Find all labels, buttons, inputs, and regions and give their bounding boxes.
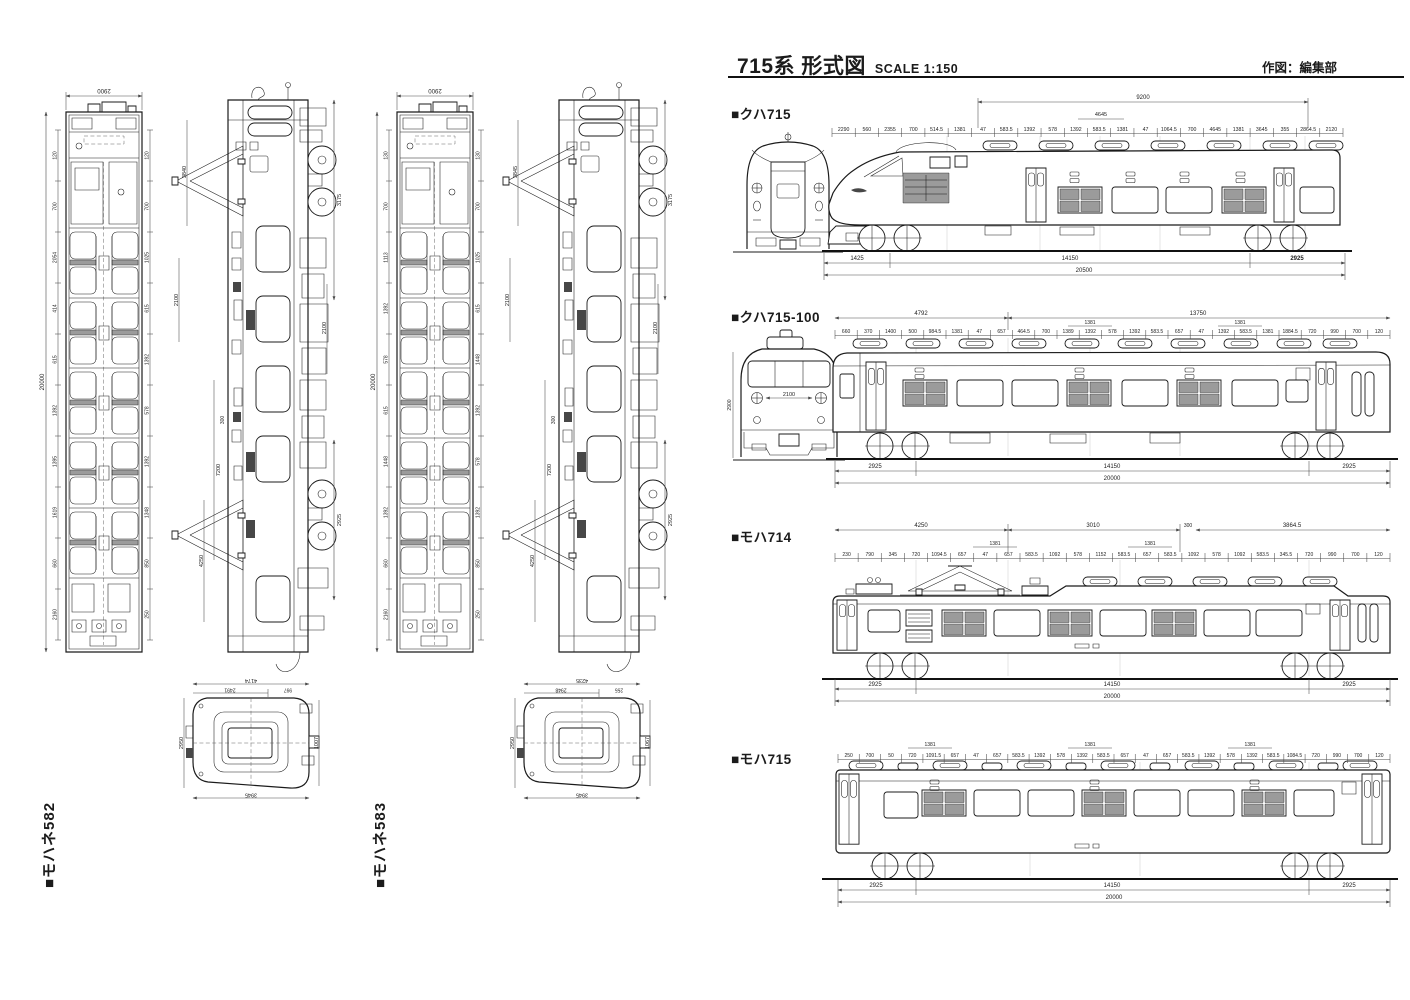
dim-text: 355: [1281, 127, 1290, 133]
dim-text: 47: [983, 552, 989, 558]
dim-text: 1025: [476, 252, 482, 263]
dim-text: 1381: [1244, 742, 1255, 748]
kuha715-drawing: 22905602355700514.5138147583.51392578139…: [733, 95, 1352, 280]
dim-text: 1092: [1188, 552, 1199, 558]
dim-text: 2925: [668, 514, 674, 526]
dim-text: 1007: [314, 737, 320, 749]
scale-note: SCALE 1:150: [875, 62, 958, 76]
dim-text: 1392: [1024, 127, 1036, 133]
dim-text: 578: [476, 457, 482, 466]
dim-text: 4645: [1095, 112, 1107, 118]
dim-text: 20000: [1104, 476, 1121, 482]
header-rule: [728, 76, 1404, 78]
dim-text: 1113: [384, 252, 390, 263]
dim-text: 230: [842, 552, 851, 558]
dim-text: 2100: [505, 294, 511, 306]
dim-text: 120: [1374, 552, 1383, 558]
dim-text: 3945: [576, 792, 588, 798]
bottom-dims: 2925 14150 2925 20000: [835, 461, 1390, 488]
dim-text: 578: [145, 406, 151, 415]
dim-text: 2491: [224, 687, 235, 693]
dim-text: 2100: [322, 322, 328, 334]
dim-text: 583.5: [1239, 329, 1252, 335]
dim-text: 583.5: [1093, 127, 1106, 133]
dim-text: 4645: [1209, 127, 1221, 133]
dim-text: 1425: [850, 256, 864, 262]
dim-text: 345.5: [1280, 552, 1293, 558]
dim-text: 720: [1305, 552, 1314, 558]
dim-text: 3010: [1086, 523, 1100, 529]
side-view: [826, 338, 1398, 459]
dim-text: 2948: [555, 687, 566, 693]
dim-text: 657: [1163, 753, 1172, 759]
dim-text: 583.5: [1025, 552, 1038, 558]
dimension-row: 2307903457201094.565747657583.5109257811…: [835, 552, 1390, 562]
dim-text: 14150: [1104, 883, 1121, 889]
dim-text: 583.5: [1151, 329, 1164, 335]
dim-text: 2925: [337, 514, 343, 526]
dim-text: 578: [1212, 552, 1221, 558]
dim-text: 2900: [97, 87, 111, 93]
bottom-dims: 1425 14150 2925 20500: [824, 253, 1345, 280]
dim-text: 578: [384, 355, 390, 364]
dim-text: 120: [53, 151, 59, 160]
dim-text: 615: [53, 355, 59, 364]
dim-text: 583.5: [1012, 753, 1025, 759]
dim-text: 47: [1199, 329, 1205, 335]
dim-text: 20000: [1104, 694, 1121, 700]
dim-text: 14150: [1062, 256, 1079, 262]
dim-text: 1392: [145, 456, 151, 467]
dim-text: 3175: [668, 194, 674, 206]
dim-text: 3945: [245, 792, 257, 798]
dim-text: 2120: [1326, 127, 1338, 133]
dim-text: 120: [1375, 329, 1384, 335]
dim-text: 47: [977, 329, 983, 335]
dim-text: 3845: [513, 166, 519, 178]
dim-text: 2054: [53, 252, 59, 263]
dim-text: 1392: [1034, 753, 1045, 759]
dim-text: 578: [1048, 127, 1057, 133]
dim-text: 700: [909, 127, 918, 133]
dim-text: 657: [1004, 552, 1013, 558]
dim-text: 500: [909, 329, 918, 335]
dim-text: 1348: [145, 507, 151, 518]
front-view: 2100 2900: [727, 330, 845, 460]
dim-text: 583.5: [1118, 552, 1131, 558]
dim-text: 1381: [1233, 127, 1245, 133]
dim-text: 1381: [1262, 329, 1273, 335]
dim-text: 578: [1074, 552, 1083, 558]
dim-text: 20000: [40, 373, 46, 390]
dim-text: 2900: [727, 399, 733, 410]
dim-text: 2900: [428, 87, 442, 93]
dim-text: 2925: [868, 464, 882, 470]
blueprint-page: 2900 20000 12070020544146151392139516196…: [0, 0, 1410, 1000]
dim-text: 657: [951, 753, 960, 759]
dim-text: 514.5: [930, 127, 943, 133]
dim-text: 1381: [1144, 541, 1155, 547]
dim-text: 14150: [1104, 464, 1121, 470]
dimension-row: 22905602355700514.5138147583.51392578139…: [832, 127, 1343, 137]
dim-text: 1392: [476, 507, 482, 518]
dim-text: 615: [476, 304, 482, 313]
dim-text: 20000: [1106, 895, 1123, 901]
dim-text: 720: [1308, 329, 1317, 335]
dim-text: 700: [53, 202, 59, 211]
dim-text: 1381: [989, 541, 1000, 547]
dim-text: 4792: [914, 311, 928, 317]
dim-text: 1381: [954, 127, 966, 133]
dim-text: 1392: [1070, 127, 1082, 133]
dim-text: 657: [958, 552, 967, 558]
dim-text: 2925: [1342, 464, 1356, 470]
dim-text: 14150: [1104, 682, 1121, 688]
dim-text: 1092: [1049, 552, 1060, 558]
dim-text: 7200: [547, 464, 553, 476]
dim-text: 370: [864, 329, 873, 335]
dim-text: 3175: [337, 194, 343, 206]
dim-text: 1400: [885, 329, 896, 335]
dim-text: 1392: [145, 354, 151, 365]
dim-text: 700: [1188, 127, 1197, 133]
dim-text: 700: [1353, 329, 1362, 335]
dim-text: 1381: [1084, 320, 1095, 326]
side-view: [822, 761, 1398, 879]
dim-text: 560: [863, 127, 872, 133]
dim-text: 700: [384, 202, 390, 211]
dim-text: 700: [1354, 753, 1363, 759]
dim-text: 1381: [1234, 320, 1245, 326]
dim-text: 720: [1312, 753, 1321, 759]
bottom-dims: 2925 14150 2925 20000: [835, 679, 1390, 706]
front-view: [733, 132, 843, 252]
credit-note: 作図：編集部: [1262, 57, 1337, 76]
dim-text: 7200: [216, 464, 222, 476]
dim-text: 615: [145, 304, 151, 313]
dim-text: 1392: [476, 405, 482, 416]
dim-text: 2925: [1342, 883, 1356, 889]
dim-text: 2950: [179, 737, 185, 749]
moha715-drawing: 250700507201091.565747657583.51392578139…: [822, 742, 1398, 907]
drawing-canvas: 2900 20000 12070020544146151392139516196…: [0, 0, 1410, 1000]
label-moha715: ■モハ715: [731, 748, 792, 768]
label-moha714: ■モハ714: [731, 526, 792, 546]
dim-text: 2160: [53, 609, 59, 620]
dim-text: 345: [889, 552, 898, 558]
dim-text: 583.5: [1182, 753, 1195, 759]
dim-text: 1392: [1085, 329, 1096, 335]
dim-text: 3840: [182, 166, 188, 178]
dim-text: 583.5: [1257, 552, 1270, 558]
dim-text: 4235: [576, 677, 588, 683]
dim-text: 700: [476, 202, 482, 211]
dim-text: 578: [1108, 329, 1117, 335]
plan-left-dims: 13070011131392578615144813926602160: [384, 130, 393, 640]
dim-text: 250: [476, 610, 482, 619]
dim-text: 1448: [384, 456, 390, 467]
dim-text: 1064.5: [1161, 127, 1177, 133]
dim-text: 657: [1175, 329, 1184, 335]
dim-text: 583.5: [1000, 127, 1013, 133]
dim-text: 660: [384, 559, 390, 568]
dim-text: 660: [53, 559, 59, 568]
dim-text: 1395: [53, 456, 59, 467]
dim-text: 720: [908, 753, 917, 759]
dim-text: 2290: [838, 127, 850, 133]
mohane583-drawing: 2900 20000 13070011131392578615144813926…: [371, 83, 674, 799]
mohane582-drawing: 2900 20000 12070020544146151392139516196…: [40, 83, 343, 799]
dim-text: 300: [551, 416, 557, 425]
dim-text: 990: [1333, 753, 1342, 759]
dim-text: 120: [1375, 753, 1384, 759]
dimension-row: 6603701400500984.5138147657464.570013891…: [835, 329, 1390, 339]
dim-text: 1025: [145, 252, 151, 263]
dim-text: 250: [145, 610, 151, 619]
dim-text: 1392: [53, 405, 59, 416]
moha714-drawing: 2307903457201094.565747657583.5109257811…: [822, 523, 1398, 706]
dim-text: 657: [1143, 552, 1152, 558]
dim-text: 464.5: [1017, 329, 1030, 335]
dim-text: 47: [973, 753, 979, 759]
dim-text: 2925: [868, 682, 882, 688]
dim-text: 1389: [1063, 329, 1074, 335]
dim-text: 850: [476, 559, 482, 568]
dim-text: 1392: [384, 507, 390, 518]
dim-text: 2355: [884, 127, 896, 133]
side-view: [822, 136, 1352, 251]
dim-text: 3645: [1256, 127, 1268, 133]
dim-text: 1392: [1246, 753, 1257, 759]
dim-text: 720: [912, 552, 921, 558]
dim-text: 850: [145, 559, 151, 568]
dim-text: 1381: [924, 742, 935, 748]
dim-text: 255: [615, 687, 624, 693]
label-mohane583: ■モハネ583: [369, 802, 390, 888]
dim-text: 4174: [245, 677, 257, 683]
dim-text: 1381: [1117, 127, 1129, 133]
label-kuha715-100: ■クハ715-100: [731, 306, 820, 326]
dim-text: 1392: [1077, 753, 1088, 759]
dim-text: 1381: [1084, 742, 1095, 748]
label-kuha715: ■クハ715: [731, 103, 791, 123]
dim-text: 2100: [783, 392, 795, 398]
dim-text: 130: [384, 151, 390, 160]
dim-text: 1392: [1204, 753, 1215, 759]
dim-text: 47: [980, 127, 986, 133]
dim-text: 700: [866, 753, 875, 759]
dim-text: 700: [145, 202, 151, 211]
dim-text: 2950: [510, 737, 516, 749]
dim-text: 1381: [952, 329, 963, 335]
dim-text: 1392: [1129, 329, 1140, 335]
dim-text: 1084.5: [1287, 753, 1303, 759]
bottom-dims: 2925 14150 2925 20000: [838, 880, 1390, 907]
plan-left-dims: 12070020544146151392139516196602160: [53, 130, 62, 640]
dim-text: 990: [1330, 329, 1339, 335]
dim-text: 615: [384, 406, 390, 415]
plan-right-dims: 1307001025615144813925781392850250: [476, 130, 485, 640]
dim-text: 578: [1227, 753, 1236, 759]
dim-text: 20500: [1076, 268, 1093, 274]
dim-text: 984.5: [929, 329, 942, 335]
dim-text: 47: [1143, 753, 1149, 759]
dim-text: 583.5: [1097, 753, 1110, 759]
dim-text: 9200: [1136, 95, 1150, 101]
dim-text: 583.5: [1164, 552, 1177, 558]
dim-text: 414: [53, 304, 59, 313]
dim-text: 578: [1057, 753, 1066, 759]
dim-text: 1067: [645, 737, 651, 749]
dim-text: 120: [145, 151, 151, 160]
dim-text: 50: [888, 753, 894, 759]
dim-text: 1091.5: [926, 753, 942, 759]
dim-text: 1092: [1234, 552, 1245, 558]
dim-text: 13750: [1190, 311, 1207, 317]
dim-text: 2925: [1290, 256, 1304, 262]
title-text: 715系 形式図: [737, 55, 866, 78]
dim-text: 1884.5: [1282, 329, 1298, 335]
dim-text: 300: [1184, 523, 1193, 529]
dim-text: 1094.5: [931, 552, 947, 558]
dim-text: 300: [220, 416, 226, 425]
kuha715-100-drawing: 2100 2900 6603701400500984.5138147657464…: [727, 311, 1398, 488]
dim-text: 250: [844, 753, 853, 759]
dim-text: 3864.5: [1283, 523, 1302, 529]
dim-text: 790: [866, 552, 875, 558]
dim-text: 990: [1328, 552, 1337, 558]
dimension-row: 250700507201091.565747657583.51392578139…: [838, 753, 1390, 763]
dim-text: 657: [997, 329, 1006, 335]
dim-text: 2100: [653, 322, 659, 334]
dim-text: 657: [1120, 753, 1129, 759]
plan-right-dims: 1207001025615139257813921348850250: [145, 130, 154, 640]
dim-text: 4250: [914, 523, 928, 529]
dim-text: 1152: [1096, 552, 1107, 558]
dim-text: 47: [1143, 127, 1149, 133]
dim-text: 2925: [869, 883, 883, 889]
dim-text: 2100: [174, 294, 180, 306]
dim-text: 1392: [384, 303, 390, 314]
dim-text: 20000: [371, 373, 377, 390]
dim-text: 657: [993, 753, 1002, 759]
dim-text: 660: [842, 329, 851, 335]
dim-text: 1448: [476, 354, 482, 365]
dim-text: 583.5: [1267, 753, 1280, 759]
dim-text: 1392: [1218, 329, 1229, 335]
dim-text: 4250: [530, 555, 536, 567]
dim-text: 700: [1351, 552, 1360, 558]
dim-text: 2160: [384, 609, 390, 620]
label-mohane582: ■モハネ582: [38, 802, 59, 888]
dim-text: 2925: [1342, 682, 1356, 688]
pantograph-icon: [900, 566, 1020, 595]
dim-text: 1619: [53, 507, 59, 518]
dim-text: 700: [1042, 329, 1051, 335]
dim-text: 997: [284, 687, 293, 693]
dim-text: 130: [476, 151, 482, 160]
side-view: [822, 560, 1398, 679]
dim-text: 4250: [199, 555, 205, 567]
